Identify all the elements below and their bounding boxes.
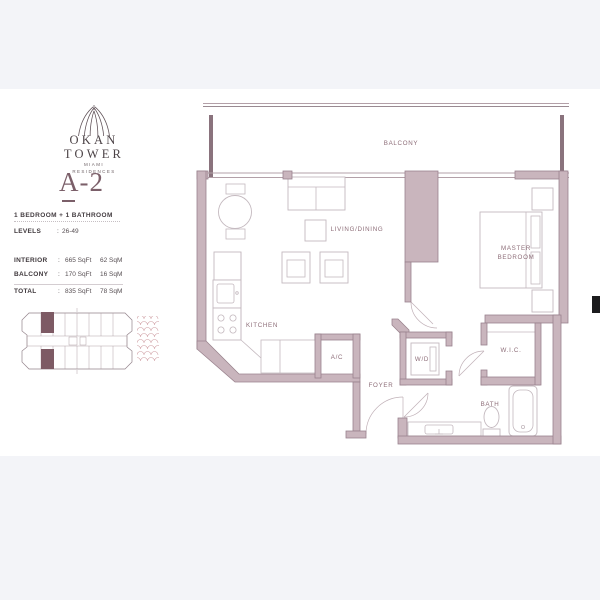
colon: :	[57, 228, 59, 235]
water-pattern-icon	[137, 316, 159, 366]
levels-value: 26-49	[62, 228, 79, 235]
area-label: BALCONY	[14, 271, 48, 278]
key-plan-unit-highlight	[41, 312, 54, 333]
right-edge-mark	[592, 296, 600, 313]
key-plan-unit-highlight	[41, 349, 54, 369]
dotted-divider	[14, 221, 120, 222]
unit-code-underline	[62, 200, 75, 202]
nightstand	[532, 290, 553, 312]
brand-name-line2: TOWER	[28, 148, 160, 161]
area-sqft: 665 SqFt	[65, 257, 91, 264]
armchair	[320, 252, 348, 283]
vanity-sink	[408, 422, 481, 436]
tower-logo-icon	[72, 105, 116, 136]
nightstand	[532, 188, 553, 210]
room-label-bath: BATH	[481, 401, 500, 408]
room-label-foyer: FOYER	[369, 382, 394, 389]
area-row-interior: INTERIOR : 665 SqFt 62 SqM	[14, 257, 144, 268]
room-label-kitchen: KITCHEN	[246, 322, 278, 329]
sofa	[288, 177, 345, 210]
dining-table	[219, 184, 252, 239]
floor-plan-svg: BALCONY LIVING/DINING MASTER BEDROOM KIT…	[195, 100, 575, 460]
brand-name-line1: OKAN	[28, 134, 160, 147]
area-label: INTERIOR	[14, 257, 47, 264]
room-label-wd: W/D	[415, 356, 429, 363]
fridge	[214, 252, 241, 280]
table-divider	[14, 284, 123, 285]
unit-type: 1 BEDROOM + 1 BATHROOM	[14, 212, 113, 219]
area-sqft: 835 SqFt	[65, 288, 91, 295]
colon: :	[58, 271, 60, 278]
armchair	[282, 252, 310, 283]
room-label-wic: W.I.C.	[500, 347, 521, 354]
area-sqft: 170 SqFt	[65, 271, 91, 278]
floor-plan: BALCONY LIVING/DINING MASTER BEDROOM KIT…	[195, 100, 575, 460]
toilet	[483, 407, 500, 438]
room-label-balcony: BALCONY	[384, 140, 418, 147]
sidebar: OKAN TOWER MIAMI RESIDENCES A-2 1 BEDROO…	[14, 104, 186, 444]
room-label-master-line2: BEDROOM	[498, 254, 535, 261]
colon: :	[58, 288, 60, 295]
area-sqm: 16 SqM	[100, 271, 122, 278]
unit-code: A-2	[59, 167, 104, 198]
area-sqm: 78 SqM	[100, 288, 122, 295]
room-label-master-line1: MASTER	[501, 245, 531, 252]
bathtub	[509, 386, 537, 436]
area-sqm: 62 SqM	[100, 257, 122, 264]
room-label-ac: A/C	[331, 354, 343, 361]
colon: :	[58, 257, 60, 264]
levels-label: LEVELS	[14, 228, 41, 235]
key-plan	[19, 307, 137, 375]
kitchen-sink	[213, 280, 241, 308]
area-label: TOTAL	[14, 288, 37, 295]
area-row-balcony: BALCONY : 170 SqFt 16 SqM	[14, 271, 144, 282]
area-row-total: TOTAL : 835 SqFt 78 SqM	[14, 288, 144, 299]
stove	[213, 308, 241, 340]
coffee-table	[305, 220, 326, 241]
levels-row: LEVELS : 26-49	[14, 228, 144, 239]
room-label-living-dining: LIVING/DINING	[331, 226, 384, 233]
